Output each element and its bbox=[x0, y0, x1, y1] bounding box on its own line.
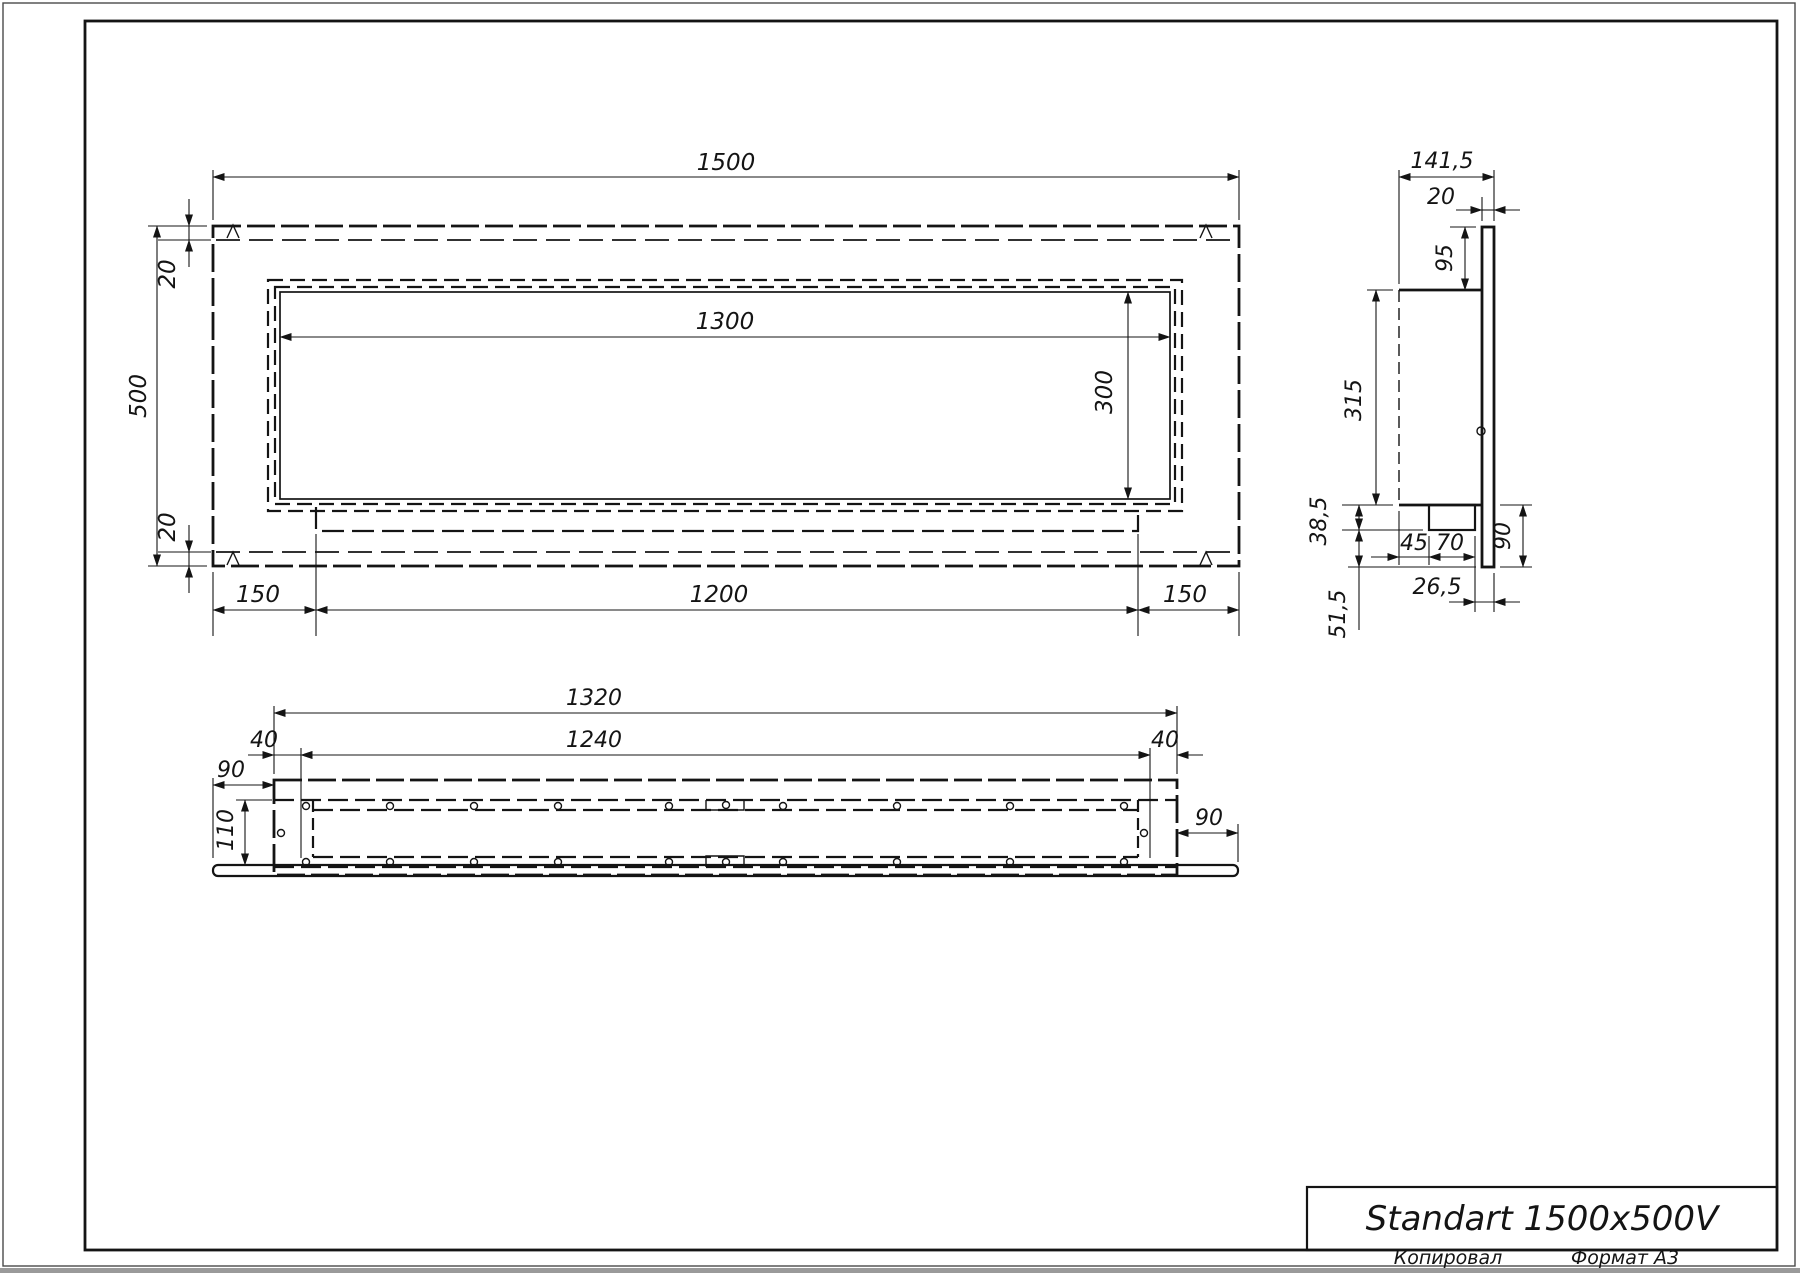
dim-side-step-height: 38,5 bbox=[1307, 497, 1332, 546]
dim-bottom-flange-left: 90 bbox=[217, 758, 245, 783]
dim-front-margin-left: 150 bbox=[236, 582, 280, 608]
dim-front-tray-width: 1200 bbox=[690, 582, 749, 608]
sheet-border bbox=[0, 3, 1800, 1273]
format-label: Формат А3 bbox=[1571, 1247, 1679, 1269]
dim-front-overall-width: 1500 bbox=[697, 150, 756, 176]
dim-bottom-depth: 110 bbox=[214, 809, 239, 851]
dim-side-body-height: 315 bbox=[1342, 379, 1367, 421]
bottom-body bbox=[274, 780, 1177, 875]
drawing-frame bbox=[85, 21, 1777, 1250]
bottom-dimension-lines bbox=[213, 713, 1238, 865]
side-dimension-texts: 141,5 20 95 315 38,5 51,5 45 70 26,5 90 bbox=[1307, 149, 1516, 638]
bottom-view-geometry bbox=[213, 780, 1238, 876]
dim-front-opening-width: 1300 bbox=[696, 309, 755, 335]
dim-bottom-flange-right: 90 bbox=[1195, 806, 1223, 831]
front-dimension-texts: 1500 500 20 20 1300 300 150 1200 150 bbox=[126, 150, 1207, 608]
bottom-dimension-texts: 1320 1240 40 40 90 90 110 bbox=[214, 686, 1223, 851]
dim-bottom-inset-right: 40 bbox=[1151, 728, 1179, 753]
weld-marks bbox=[227, 225, 1212, 565]
front-outer-frame bbox=[213, 226, 1239, 566]
dim-side-face-thickness: 20 bbox=[1427, 185, 1455, 210]
dim-front-opening-height: 300 bbox=[1092, 370, 1118, 414]
dim-front-flange-top: 20 bbox=[155, 259, 181, 288]
dim-side-lower-height: 90 bbox=[1491, 522, 1516, 550]
dim-side-channel-width: 70 bbox=[1436, 531, 1464, 556]
drawing-title: Standart 1500x500V bbox=[1366, 1199, 1721, 1239]
front-dimension-lines bbox=[157, 177, 1239, 610]
side-channel bbox=[1429, 505, 1475, 530]
bottom-view: 1320 1240 40 40 90 90 110 bbox=[213, 686, 1238, 876]
dim-side-channel-offset: 26,5 bbox=[1413, 575, 1462, 600]
dim-bottom-inset-left: 40 bbox=[250, 728, 278, 753]
dim-front-overall-height: 500 bbox=[126, 374, 152, 418]
dim-bottom-body-length: 1320 bbox=[566, 686, 622, 711]
drawing-sheet: 1500 500 20 20 1300 300 150 1200 150 bbox=[0, 0, 1800, 1273]
side-face-plate bbox=[1482, 227, 1494, 567]
bottom-extension-lines bbox=[213, 706, 1238, 862]
copied-label: Копировал bbox=[1394, 1247, 1503, 1269]
front-view: 1500 500 20 20 1300 300 150 1200 150 bbox=[126, 150, 1239, 636]
side-view: 141,5 20 95 315 38,5 51,5 45 70 26,5 90 bbox=[1307, 149, 1532, 638]
dim-front-flange-bottom: 20 bbox=[155, 512, 181, 541]
dim-side-depth: 141,5 bbox=[1411, 149, 1474, 174]
dim-side-ledge-width: 45 bbox=[1400, 531, 1428, 556]
dim-side-lower-offset: 51,5 bbox=[1326, 590, 1351, 639]
title-block: Standart 1500x500V Копировал Формат А3 bbox=[1307, 1187, 1777, 1269]
dim-front-margin-right: 150 bbox=[1163, 582, 1207, 608]
dim-side-top-offset: 95 bbox=[1433, 244, 1458, 272]
dim-bottom-opening-length: 1240 bbox=[566, 728, 622, 753]
front-view-geometry bbox=[213, 225, 1239, 566]
side-view-geometry bbox=[1399, 227, 1494, 567]
